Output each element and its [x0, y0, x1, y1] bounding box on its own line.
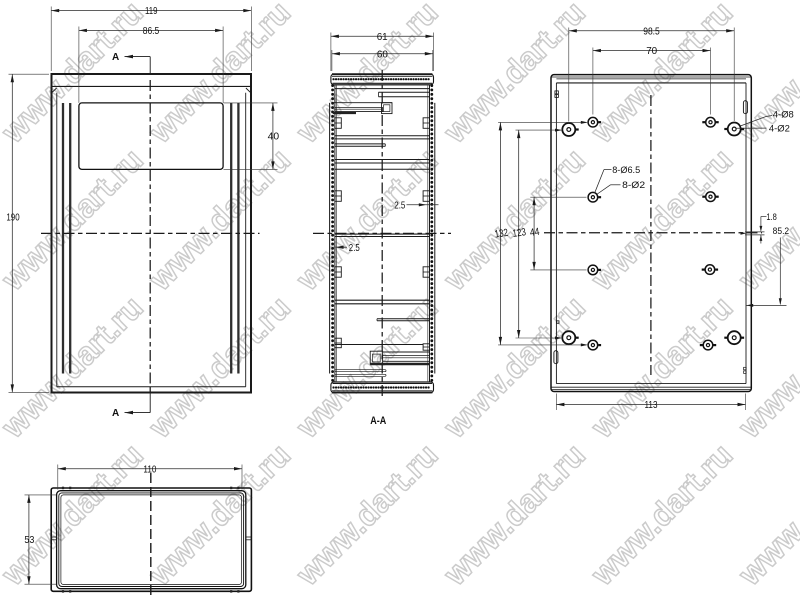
svg-text:86.5: 86.5: [143, 26, 160, 37]
svg-text:2.5: 2.5: [349, 242, 360, 254]
svg-text:70: 70: [646, 46, 657, 57]
svg-text:123: 123: [512, 226, 527, 240]
svg-text:98.5: 98.5: [643, 26, 660, 37]
svg-text:113: 113: [645, 400, 658, 411]
svg-text:119: 119: [145, 6, 158, 17]
svg-text:190: 190: [6, 213, 19, 224]
svg-text:44: 44: [529, 226, 540, 239]
svg-text:8-Ø6.5: 8-Ø6.5: [612, 165, 640, 176]
svg-text:40: 40: [268, 132, 280, 143]
svg-text:2.5: 2.5: [394, 200, 405, 212]
svg-text:53: 53: [24, 535, 34, 546]
svg-text:85.2: 85.2: [773, 226, 790, 237]
svg-text:A: A: [112, 52, 119, 63]
svg-text:61: 61: [377, 32, 388, 43]
svg-text:110: 110: [143, 464, 156, 475]
svg-text:A-A: A-A: [370, 415, 386, 427]
svg-text:4-Ø2: 4-Ø2: [769, 123, 790, 134]
svg-text:4-Ø8: 4-Ø8: [773, 110, 794, 121]
svg-text:A: A: [112, 408, 119, 419]
svg-text:132: 132: [494, 227, 509, 241]
svg-text:8-Ø2: 8-Ø2: [622, 180, 645, 191]
svg-text:60: 60: [377, 49, 388, 60]
svg-text:1.8: 1.8: [766, 212, 777, 223]
